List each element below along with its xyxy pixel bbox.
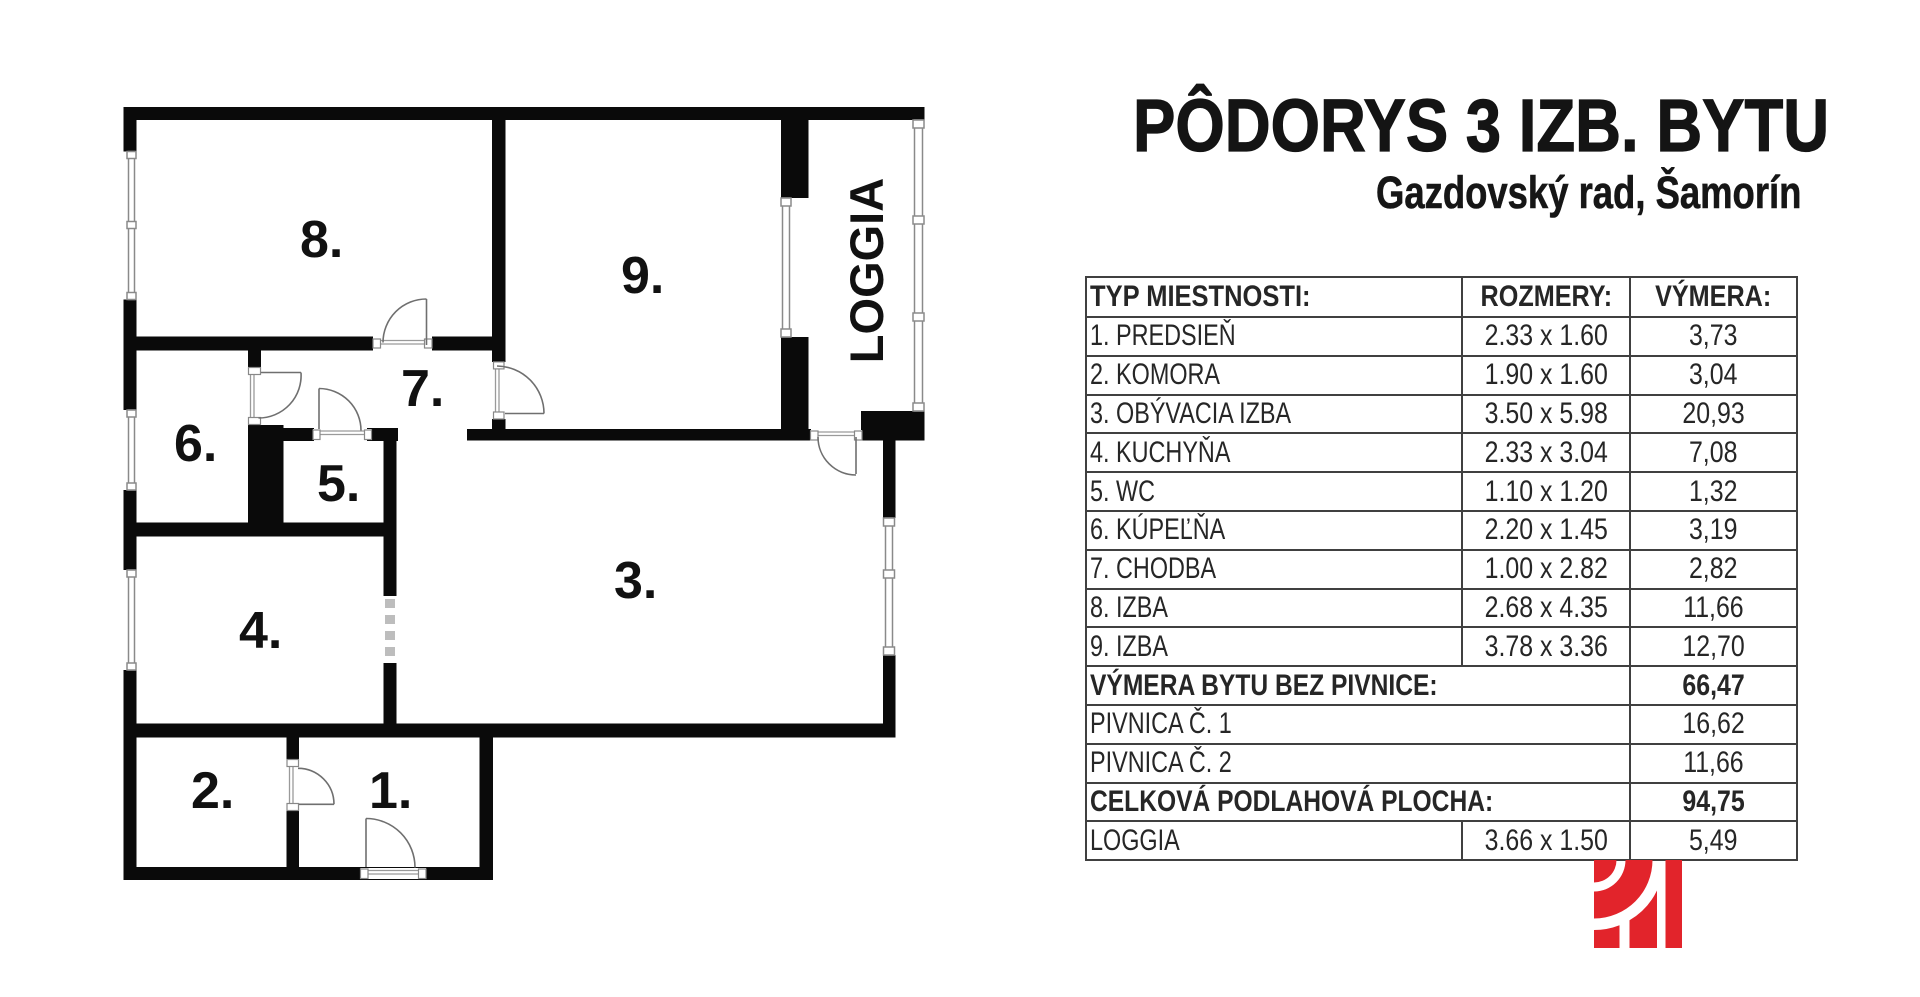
svg-text:1.: 1. bbox=[369, 762, 412, 820]
svg-text:8.: 8. bbox=[300, 211, 343, 269]
svg-text:4.: 4. bbox=[239, 602, 282, 660]
svg-text:7.: 7. bbox=[401, 360, 444, 418]
svg-text:LOGGIA: LOGGIA bbox=[840, 178, 893, 363]
svg-text:2.: 2. bbox=[191, 762, 234, 820]
svg-text:5.: 5. bbox=[317, 455, 360, 513]
svg-text:9.: 9. bbox=[621, 247, 664, 305]
svg-text:6.: 6. bbox=[174, 415, 217, 473]
svg-text:3.: 3. bbox=[614, 552, 657, 610]
